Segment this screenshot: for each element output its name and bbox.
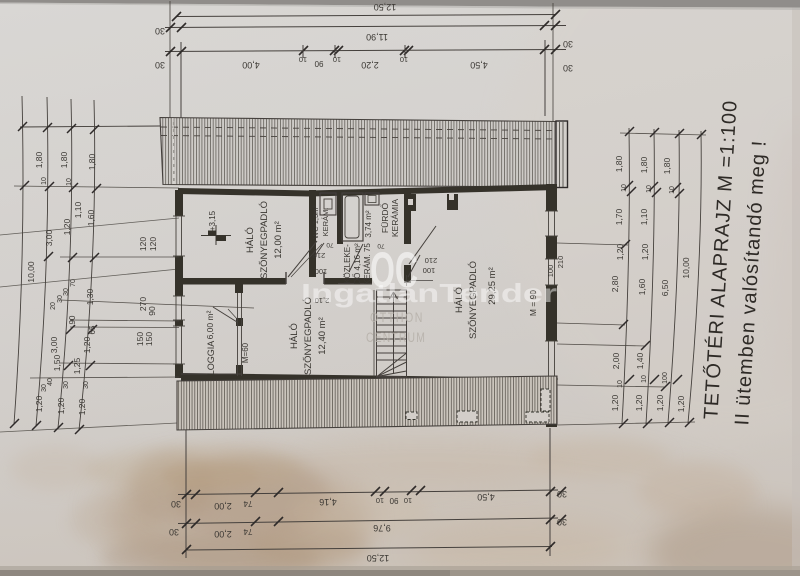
svg-text:SZŐNYEGPADLÓ: SZŐNYEGPADLÓ: [259, 201, 270, 279]
svg-text:120: 120: [138, 237, 148, 251]
svg-text:10: 10: [621, 184, 628, 192]
svg-text:1,20: 1,20: [77, 398, 87, 415]
svg-text:1,80: 1,80: [34, 151, 44, 168]
svg-text:1,20: 1,20: [640, 243, 650, 260]
svg-text:30: 30: [57, 295, 64, 303]
svg-text:2,00: 2,00: [214, 501, 232, 511]
svg-text:100: 100: [315, 267, 328, 276]
svg-text:30: 30: [169, 527, 179, 537]
svg-text:210: 210: [556, 256, 565, 269]
svg-text:1,20: 1,20: [62, 218, 72, 235]
svg-text:65: 65: [88, 325, 97, 334]
svg-text:4,00: 4,00: [242, 60, 260, 70]
svg-text:30: 30: [83, 381, 90, 389]
svg-text:1,20: 1,20: [615, 243, 625, 260]
svg-text:90: 90: [147, 306, 157, 316]
svg-text:CENTRUM: CENTRUM: [366, 330, 426, 345]
svg-text:4,50: 4,50: [470, 60, 488, 70]
svg-text:10: 10: [669, 186, 676, 194]
svg-text:OTTHON: OTTHON: [370, 310, 424, 325]
svg-text:3,74 m²: 3,74 m²: [364, 210, 373, 237]
svg-text:74: 74: [243, 499, 252, 508]
svg-text:KERÁM.: KERÁM.: [321, 208, 330, 237]
svg-text:1,80: 1,80: [614, 155, 624, 172]
svg-text:1,20: 1,20: [34, 395, 44, 412]
svg-text:30: 30: [557, 489, 567, 499]
svg-text:30: 30: [63, 381, 70, 389]
svg-text:6,00 m²: 6,00 m²: [205, 310, 215, 339]
svg-text:M=60: M=60: [241, 342, 250, 363]
svg-text:40: 40: [47, 378, 54, 386]
svg-text:10: 10: [404, 496, 412, 505]
svg-text:12,00 m²: 12,00 m²: [273, 221, 284, 259]
svg-text:1,40: 1,40: [635, 352, 645, 369]
svg-text:30: 30: [171, 499, 181, 509]
svg-text:9,76: 9,76: [373, 523, 391, 533]
svg-text:6,50: 6,50: [660, 279, 670, 296]
svg-text:90: 90: [314, 59, 323, 68]
svg-text:IngatlanTender: IngatlanTender: [301, 278, 557, 308]
svg-text:90: 90: [68, 315, 77, 324]
svg-text:150: 150: [144, 332, 154, 346]
svg-text:100: 100: [662, 372, 669, 384]
svg-text:10: 10: [376, 496, 384, 505]
svg-text:1,80: 1,80: [639, 156, 649, 173]
svg-text:12,50: 12,50: [374, 2, 397, 12]
svg-text:1,20: 1,20: [676, 395, 686, 412]
svg-text:1,10: 1,10: [639, 208, 649, 225]
svg-text:10: 10: [646, 185, 653, 193]
svg-text:KERÁMIA: KERÁMIA: [390, 199, 400, 238]
svg-text:SZŐNYEGPADLÓ: SZŐNYEGPADLÓ: [303, 297, 314, 375]
svg-text:11,90: 11,90: [366, 32, 388, 42]
svg-text:1,20: 1,20: [634, 394, 644, 411]
svg-text:210: 210: [313, 251, 326, 260]
svg-text:100: 100: [546, 265, 555, 278]
svg-text:30: 30: [155, 26, 165, 36]
svg-text:70: 70: [70, 279, 77, 287]
svg-text:20: 20: [50, 302, 57, 310]
svg-text:90: 90: [389, 496, 398, 505]
svg-text:30: 30: [41, 384, 48, 392]
svg-text:10: 10: [641, 375, 648, 383]
svg-text:2,80: 2,80: [610, 275, 620, 292]
svg-text:10,00: 10,00: [681, 257, 691, 279]
svg-text:2,00: 2,00: [611, 352, 621, 369]
svg-text:FÜRDŐ: FÜRDŐ: [380, 203, 390, 234]
svg-text:1,20: 1,20: [56, 397, 66, 414]
svg-text:74: 74: [243, 527, 252, 536]
svg-text:100: 100: [423, 266, 436, 275]
svg-text:LOGGIA: LOGGIA: [206, 341, 216, 376]
svg-text:2,20: 2,20: [361, 60, 379, 70]
svg-text:30: 30: [155, 60, 165, 70]
svg-text:30: 30: [563, 63, 573, 73]
svg-text:10: 10: [400, 55, 408, 64]
svg-text:1,70: 1,70: [614, 208, 624, 225]
svg-text:3,00: 3,00: [44, 229, 54, 246]
svg-text:70: 70: [326, 241, 334, 248]
svg-text:10: 10: [41, 177, 48, 185]
svg-text:120: 120: [148, 237, 158, 251]
svg-text:1,20: 1,20: [82, 336, 92, 353]
svg-text:10: 10: [333, 55, 341, 64]
svg-text:1,80: 1,80: [87, 153, 97, 170]
svg-text:10,00: 10,00: [26, 261, 36, 283]
svg-text:4,50: 4,50: [477, 492, 495, 502]
svg-text:3,00: 3,00: [49, 336, 59, 353]
svg-text:10: 10: [617, 380, 624, 388]
svg-text:12,50: 12,50: [367, 553, 390, 563]
svg-text:30: 30: [563, 39, 573, 49]
svg-text:10: 10: [66, 178, 73, 186]
svg-text:1,25: 1,25: [72, 357, 82, 374]
svg-text:HÁLÓ: HÁLÓ: [289, 323, 300, 349]
svg-text:1,30: 1,30: [85, 288, 95, 305]
svg-text:2,00: 2,00: [214, 529, 232, 539]
svg-text:10: 10: [299, 55, 307, 64]
svg-text:210: 210: [425, 256, 438, 265]
svg-text:1,80: 1,80: [59, 151, 69, 168]
svg-text:1,60: 1,60: [86, 209, 96, 226]
svg-text:30: 30: [557, 517, 567, 527]
svg-text:1,80: 1,80: [662, 157, 672, 174]
svg-text:12,40 m²: 12,40 m²: [317, 317, 328, 355]
svg-text:4,16: 4,16: [319, 497, 337, 507]
svg-text:1,60: 1,60: [637, 278, 647, 295]
svg-text:1,50: 1,50: [52, 354, 62, 371]
svg-text:1,20: 1,20: [610, 394, 620, 411]
svg-text:30: 30: [63, 288, 70, 296]
svg-text:WC 1,3m²: WC 1,3m²: [311, 205, 320, 239]
svg-text:1,20: 1,20: [655, 394, 665, 411]
svg-text:1,10: 1,10: [73, 201, 83, 218]
svg-text:HÁLÓ: HÁLÓ: [245, 227, 256, 253]
